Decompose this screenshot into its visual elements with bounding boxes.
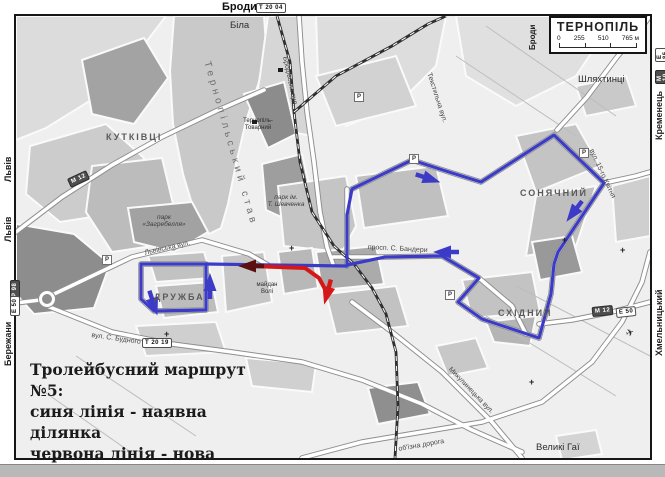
route-legend: Тролейбусний маршрут №5: синя лінія - на… [30, 360, 272, 477]
scanned-map-page: Броди Т 20 04 Львів Львів Р 98 Е 50 Бере… [0, 0, 665, 477]
edge-label-lviv-1: Львів [3, 157, 13, 182]
church-icon: + [289, 244, 294, 253]
district-skhidnyi: СХІДНИЙ [498, 308, 553, 318]
city-title: ТЕРНОПІЛЬ [551, 20, 645, 34]
freight-station-label: Тернопіль- Товарний [238, 118, 278, 131]
parking-icon: Р [579, 148, 589, 158]
park-zagrebellya-label: парк «Загребелля» [136, 214, 192, 229]
edge-label-khmelnytskyi: Хмельницький [654, 289, 664, 356]
church-icon: + [562, 236, 567, 245]
village-shliakhtyntsi: Шляхтинці [578, 74, 625, 85]
district-soniachnyi: СОНЯЧНИЙ [520, 188, 588, 198]
top-destination-label: Броди [222, 1, 257, 13]
brody-direction-label: Броди [528, 25, 537, 50]
road-badge-e85: Е 85 [655, 48, 665, 62]
building-marker [252, 120, 257, 124]
edge-label-lviv-2: Львів [3, 217, 13, 242]
maidan-voli-label: майдан Волі [250, 282, 284, 295]
legend-line-1: Тролейбусний маршрут №5: [30, 360, 272, 402]
park-shevchenka-label: парк ім. Т. Шевченка [262, 194, 310, 209]
road-badge-t2004: Т 20 04 [256, 3, 286, 13]
legend-line-2: синя лінія - наявна ділянка [30, 402, 272, 444]
edge-label-kremenets: Кременець [654, 91, 664, 140]
road-badge-t2019-south: Т 20 19 [142, 338, 172, 348]
road-badge-e50-left: Е 50 [10, 296, 20, 316]
building-marker [278, 68, 283, 72]
village-bila: Біла [230, 20, 249, 31]
edge-label-berezhany: Бережани [3, 322, 13, 366]
district-druzhba: ДРУЖБА [154, 292, 205, 302]
road-badge-e50-east: Е 50 [616, 306, 637, 318]
scale-tick-labels: 0 255 510 765 м [551, 35, 645, 42]
page-bottom-strip [0, 464, 665, 477]
parking-icon: Р [102, 255, 112, 265]
scale-bar [559, 43, 637, 48]
map-title-box: ТЕРНОПІЛЬ 0 255 510 765 м [549, 16, 647, 54]
village-velyki-hai: Великі Гаї [536, 442, 580, 453]
church-icon: + [620, 246, 625, 255]
parking-icon: Р [409, 154, 419, 164]
parking-icon: Р [354, 92, 364, 102]
district-kutkivtsi: КУТКІВЦІ [106, 132, 162, 142]
parking-icon: Р [445, 290, 455, 300]
church-icon: + [529, 378, 534, 387]
road-badge-m19: М 19 [655, 70, 665, 84]
